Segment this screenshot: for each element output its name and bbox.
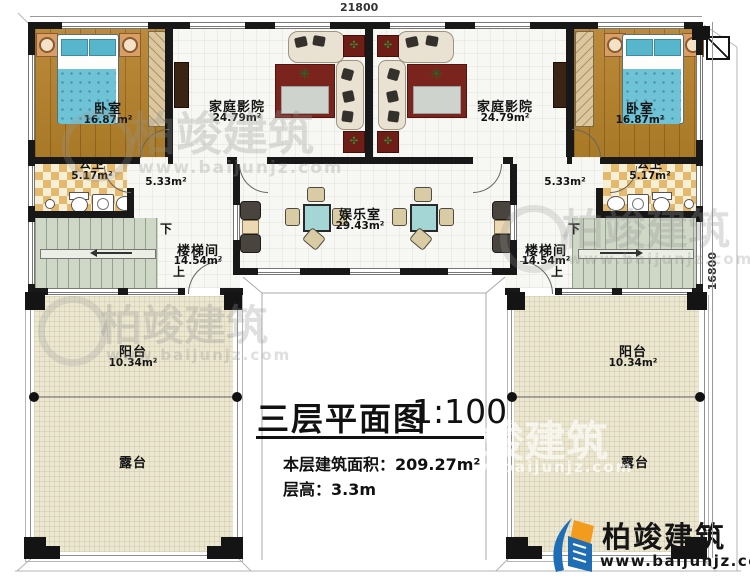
speaker: ✣ — [343, 35, 365, 57]
chair — [285, 208, 300, 226]
stair-right-up-label: 上 — [551, 263, 563, 280]
window — [696, 166, 703, 206]
room-area-theater-left: 24.79m² — [213, 112, 262, 124]
brand-logo: 柏竣建筑 www.baijunjz.com — [550, 508, 745, 580]
wall-rec-south — [233, 268, 258, 275]
chair — [392, 208, 407, 226]
floor-plan: 21800 16800 — [0, 0, 750, 585]
wall-wingL-top — [178, 288, 185, 295]
window — [350, 268, 400, 275]
stair-right-arrow — [600, 252, 636, 254]
dimension-line-top — [30, 16, 702, 17]
wall-mid — [227, 157, 237, 164]
window — [62, 22, 148, 29]
armchair — [240, 201, 261, 220]
rug-right: ✳ — [407, 64, 467, 118]
window — [622, 288, 692, 295]
window — [28, 222, 35, 284]
window — [696, 222, 703, 284]
rug-left: ✳ — [275, 64, 335, 118]
window — [448, 268, 492, 275]
room-area-bath-left: 5.17m² — [71, 170, 112, 182]
table — [303, 204, 331, 232]
sofa — [397, 31, 454, 63]
floor-area-line: 本层建筑面积：209.27m² — [283, 451, 480, 475]
room-area-recreation: 29.43m² — [336, 220, 385, 232]
wall-mid — [168, 157, 173, 164]
stair-left-handrail — [40, 249, 156, 259]
chair — [439, 208, 454, 226]
chimney — [706, 36, 730, 60]
stair-right-down-label: 下 — [568, 220, 580, 237]
pillar — [224, 292, 242, 310]
wardrobe-right — [575, 31, 594, 127]
room-area-bedroom-right: 16.87m² — [616, 114, 665, 126]
room-label-terrace-right: 露台 — [621, 452, 649, 471]
window — [258, 268, 300, 275]
window — [390, 22, 445, 29]
side-table — [242, 220, 259, 234]
wall-wingL-top — [118, 288, 128, 295]
brand-url: www.baijunjz.com — [600, 552, 750, 570]
stair-left-arrow — [96, 252, 132, 254]
plan-scale: 1:100 — [412, 392, 507, 431]
plant-icon: ✳ — [430, 67, 443, 82]
wall-mid — [267, 157, 473, 164]
opening-rec-west — [233, 205, 240, 240]
wall-bathL-bottom — [28, 211, 134, 218]
window — [598, 22, 684, 29]
window — [475, 22, 530, 29]
brand-name: 柏竣建筑 — [602, 514, 726, 556]
plan-title: 三层平面图 — [257, 394, 427, 440]
pillar — [506, 546, 542, 559]
window — [48, 288, 118, 295]
floor-height-line: 层高：3.3m — [283, 476, 376, 500]
chair — [307, 187, 325, 202]
floor-lamp — [45, 199, 55, 209]
sofa-sectional — [336, 60, 364, 130]
title-underline — [256, 436, 484, 439]
wall-wingR-top — [555, 288, 562, 295]
dimension-line-right — [712, 22, 713, 558]
room-area-balcony-left: 10.34m² — [109, 357, 158, 369]
speaker: ✣ — [343, 131, 365, 153]
wall-rec-south — [400, 268, 448, 275]
wall-wingR-top — [612, 288, 622, 295]
sink — [607, 196, 625, 211]
stair-left-up-label: 上 — [173, 263, 185, 280]
window — [28, 55, 35, 140]
window — [128, 288, 178, 295]
room-area-bath-right: 5.17m² — [629, 170, 670, 182]
dimension-top: 21800 — [340, 1, 378, 14]
sofa-sectional — [378, 60, 406, 130]
window — [275, 22, 330, 29]
pillar — [507, 292, 525, 310]
window — [562, 288, 612, 295]
nightstand — [119, 33, 141, 57]
wall-rec-south — [300, 268, 350, 275]
sofa — [288, 31, 345, 63]
nightstand — [36, 33, 58, 57]
table — [410, 204, 438, 232]
brand-logo-icon — [550, 512, 600, 574]
stair-right-arrowhead — [636, 249, 643, 257]
stair-left-down-label: 下 — [160, 220, 172, 237]
opening-rec-east — [510, 205, 517, 240]
pillar — [207, 546, 243, 559]
room-area-bedroom-left: 16.87m² — [84, 114, 133, 126]
floor-area-label: 本层建筑面积： — [283, 455, 395, 474]
wall-rec-south — [492, 268, 517, 275]
room-area-balcony-right: 10.34m² — [609, 357, 658, 369]
pillar — [25, 292, 45, 310]
chair — [414, 187, 432, 202]
wall-mid — [503, 157, 513, 164]
wall-rec-east — [510, 164, 517, 205]
wall-bathR-west — [596, 188, 603, 213]
wall-center-divider — [365, 29, 373, 157]
floor-area-value: 209.27m² — [395, 455, 480, 474]
tv-cabinet-left — [174, 62, 189, 108]
room-area-corridor-right: 5.33m² — [544, 176, 585, 188]
pillar — [24, 546, 60, 559]
floor-height-value: 3.3m — [331, 480, 376, 499]
speaker: ✣ — [377, 131, 399, 153]
window — [190, 22, 245, 29]
room-area-stair-right: 14.54m² — [522, 255, 571, 267]
stair-left-arrowhead — [90, 249, 97, 257]
side-table — [494, 220, 511, 234]
window — [696, 55, 703, 140]
pillar — [687, 292, 707, 310]
armchair — [240, 234, 261, 253]
room-label-terrace-left: 露台 — [119, 452, 147, 471]
room-area-corridor-left: 5.33m² — [145, 176, 186, 188]
window — [28, 166, 35, 206]
speaker: ✣ — [377, 35, 399, 57]
plant-icon: ✳ — [298, 67, 311, 82]
floor-height-label: 层高： — [283, 480, 331, 499]
room-area-theater-right: 24.79m² — [481, 112, 530, 124]
wall-bathR-bottom — [596, 211, 703, 218]
floor-lamp — [684, 199, 694, 209]
wall-mid — [567, 157, 572, 164]
